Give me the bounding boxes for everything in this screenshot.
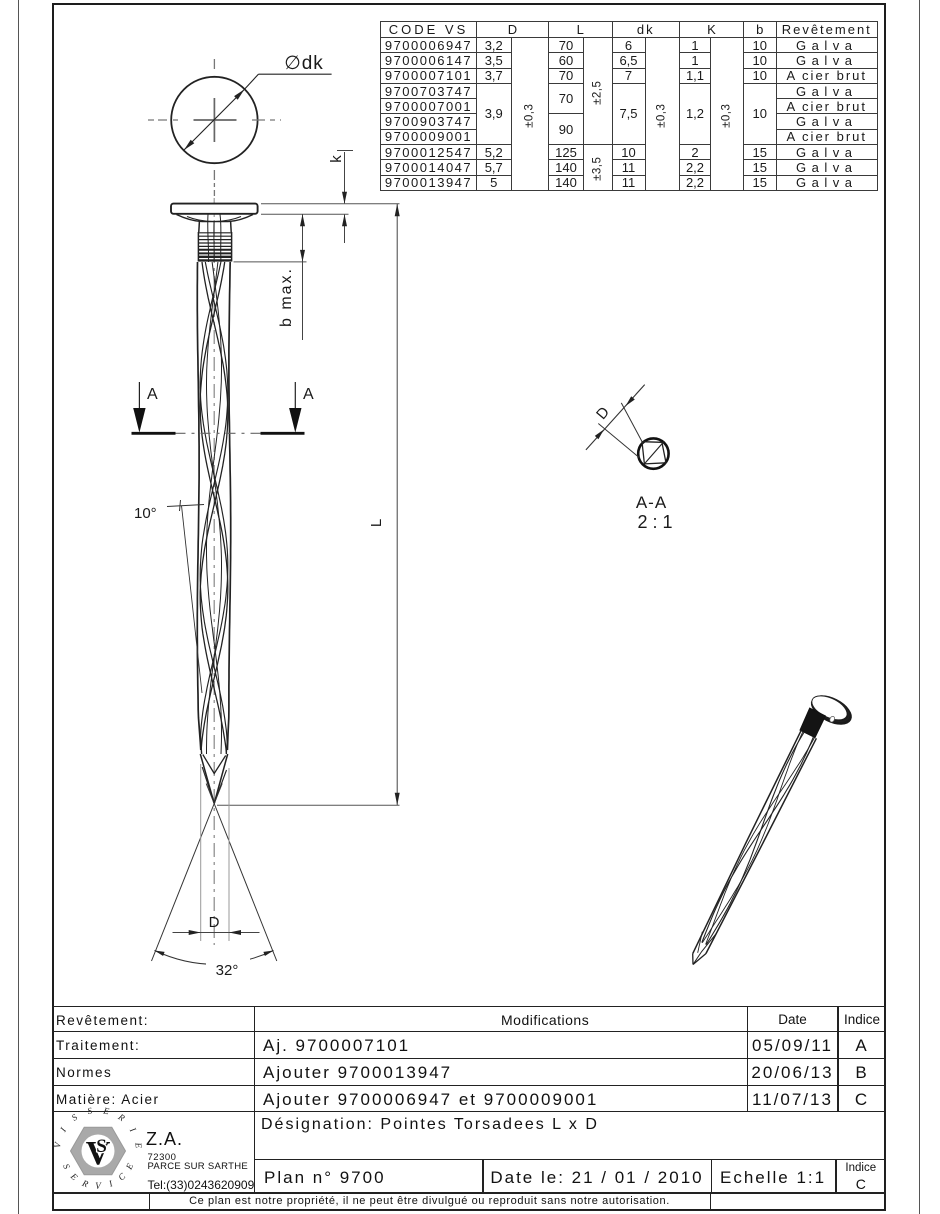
svg-text:k: k — [328, 155, 345, 163]
svg-text:10°: 10° — [134, 505, 157, 522]
svg-text:b max.: b max. — [278, 267, 295, 327]
svg-text:L: L — [368, 519, 385, 527]
svg-text:∅dk: ∅dk — [284, 53, 324, 74]
svg-text:32°: 32° — [216, 962, 239, 979]
svg-text:D: D — [209, 914, 220, 931]
svg-text:A-A: A-A — [636, 493, 667, 512]
svg-text:A: A — [147, 386, 158, 403]
svg-text:2 : 1: 2 : 1 — [637, 512, 672, 532]
svg-text:A: A — [303, 386, 314, 403]
svg-text:D: D — [593, 404, 613, 423]
